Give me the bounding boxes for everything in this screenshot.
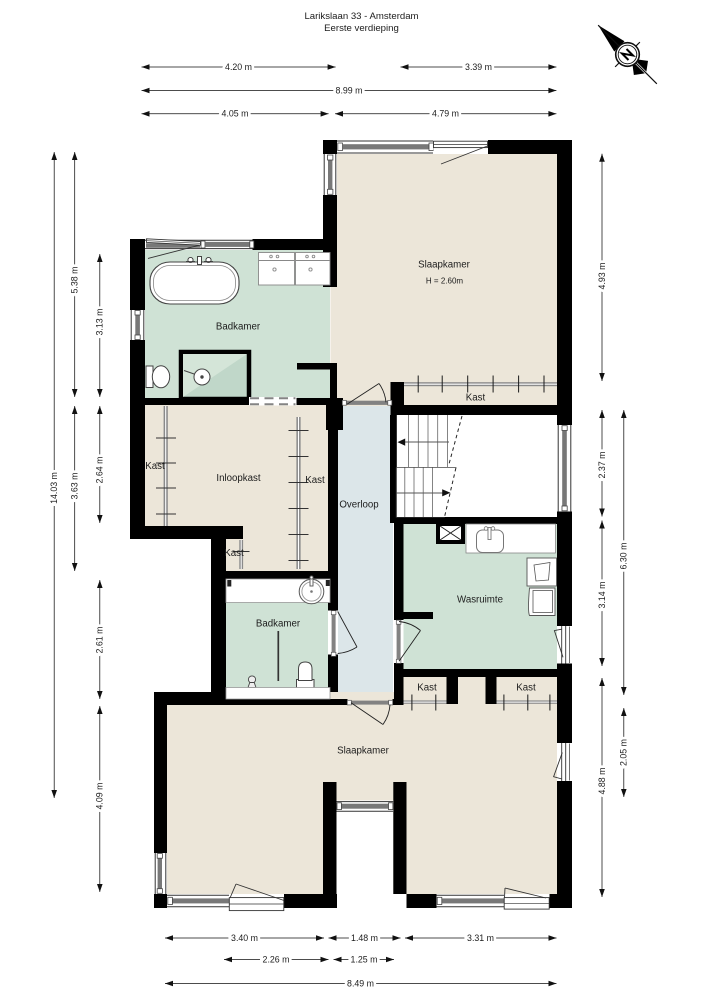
svg-text:4.20 m: 4.20 m [225,62,252,72]
svg-text:Kast: Kast [417,683,437,694]
svg-text:2.26 m: 2.26 m [263,954,290,964]
svg-text:Badkamer: Badkamer [216,322,261,333]
svg-text:4.93 m: 4.93 m [597,263,607,290]
svg-text:Kast: Kast [466,393,486,404]
svg-text:5.38 m: 5.38 m [69,267,79,294]
svg-text:3.13 m: 3.13 m [95,309,105,336]
svg-text:2.64 m: 2.64 m [95,457,105,484]
svg-text:Slaapkamer: Slaapkamer [337,746,389,757]
svg-text:Overloop: Overloop [339,500,378,511]
svg-text:Larikslaan 33 - Amsterdam: Larikslaan 33 - Amsterdam [304,11,418,22]
svg-text:4.05 m: 4.05 m [222,109,249,119]
svg-text:H = 2.60m: H = 2.60m [426,277,463,286]
svg-text:4.88 m: 4.88 m [597,768,607,795]
svg-text:Kast: Kast [224,548,244,559]
svg-text:2.61 m: 2.61 m [95,627,105,654]
svg-text:Slaapkamer: Slaapkamer [418,260,470,271]
svg-text:14.03 m: 14.03 m [49,472,59,504]
svg-text:4.09 m: 4.09 m [95,783,105,810]
svg-text:4.79 m: 4.79 m [432,109,459,119]
svg-text:8.99 m: 8.99 m [336,85,363,95]
svg-text:3.31 m: 3.31 m [467,933,494,943]
svg-text:Wasruimte: Wasruimte [457,595,503,606]
svg-text:Eerste verdieping: Eerste verdieping [324,23,399,34]
svg-text:8.49 m: 8.49 m [347,978,374,988]
svg-text:Kast: Kast [145,461,165,472]
svg-text:3.63 m: 3.63 m [69,473,79,500]
svg-text:2.37 m: 2.37 m [597,452,607,479]
svg-text:Kast: Kast [305,475,325,486]
svg-text:3.39 m: 3.39 m [465,62,492,72]
svg-text:6.30 m: 6.30 m [619,543,629,570]
svg-text:Kast: Kast [516,683,536,694]
svg-text:1.25 m: 1.25 m [351,954,378,964]
svg-text:2.05 m: 2.05 m [619,739,629,766]
svg-text:3.40 m: 3.40 m [231,933,258,943]
svg-text:1.48 m: 1.48 m [351,933,378,943]
svg-text:3.14 m: 3.14 m [597,582,607,609]
svg-text:Inloopkast: Inloopkast [216,473,260,484]
svg-text:Badkamer: Badkamer [256,619,301,630]
